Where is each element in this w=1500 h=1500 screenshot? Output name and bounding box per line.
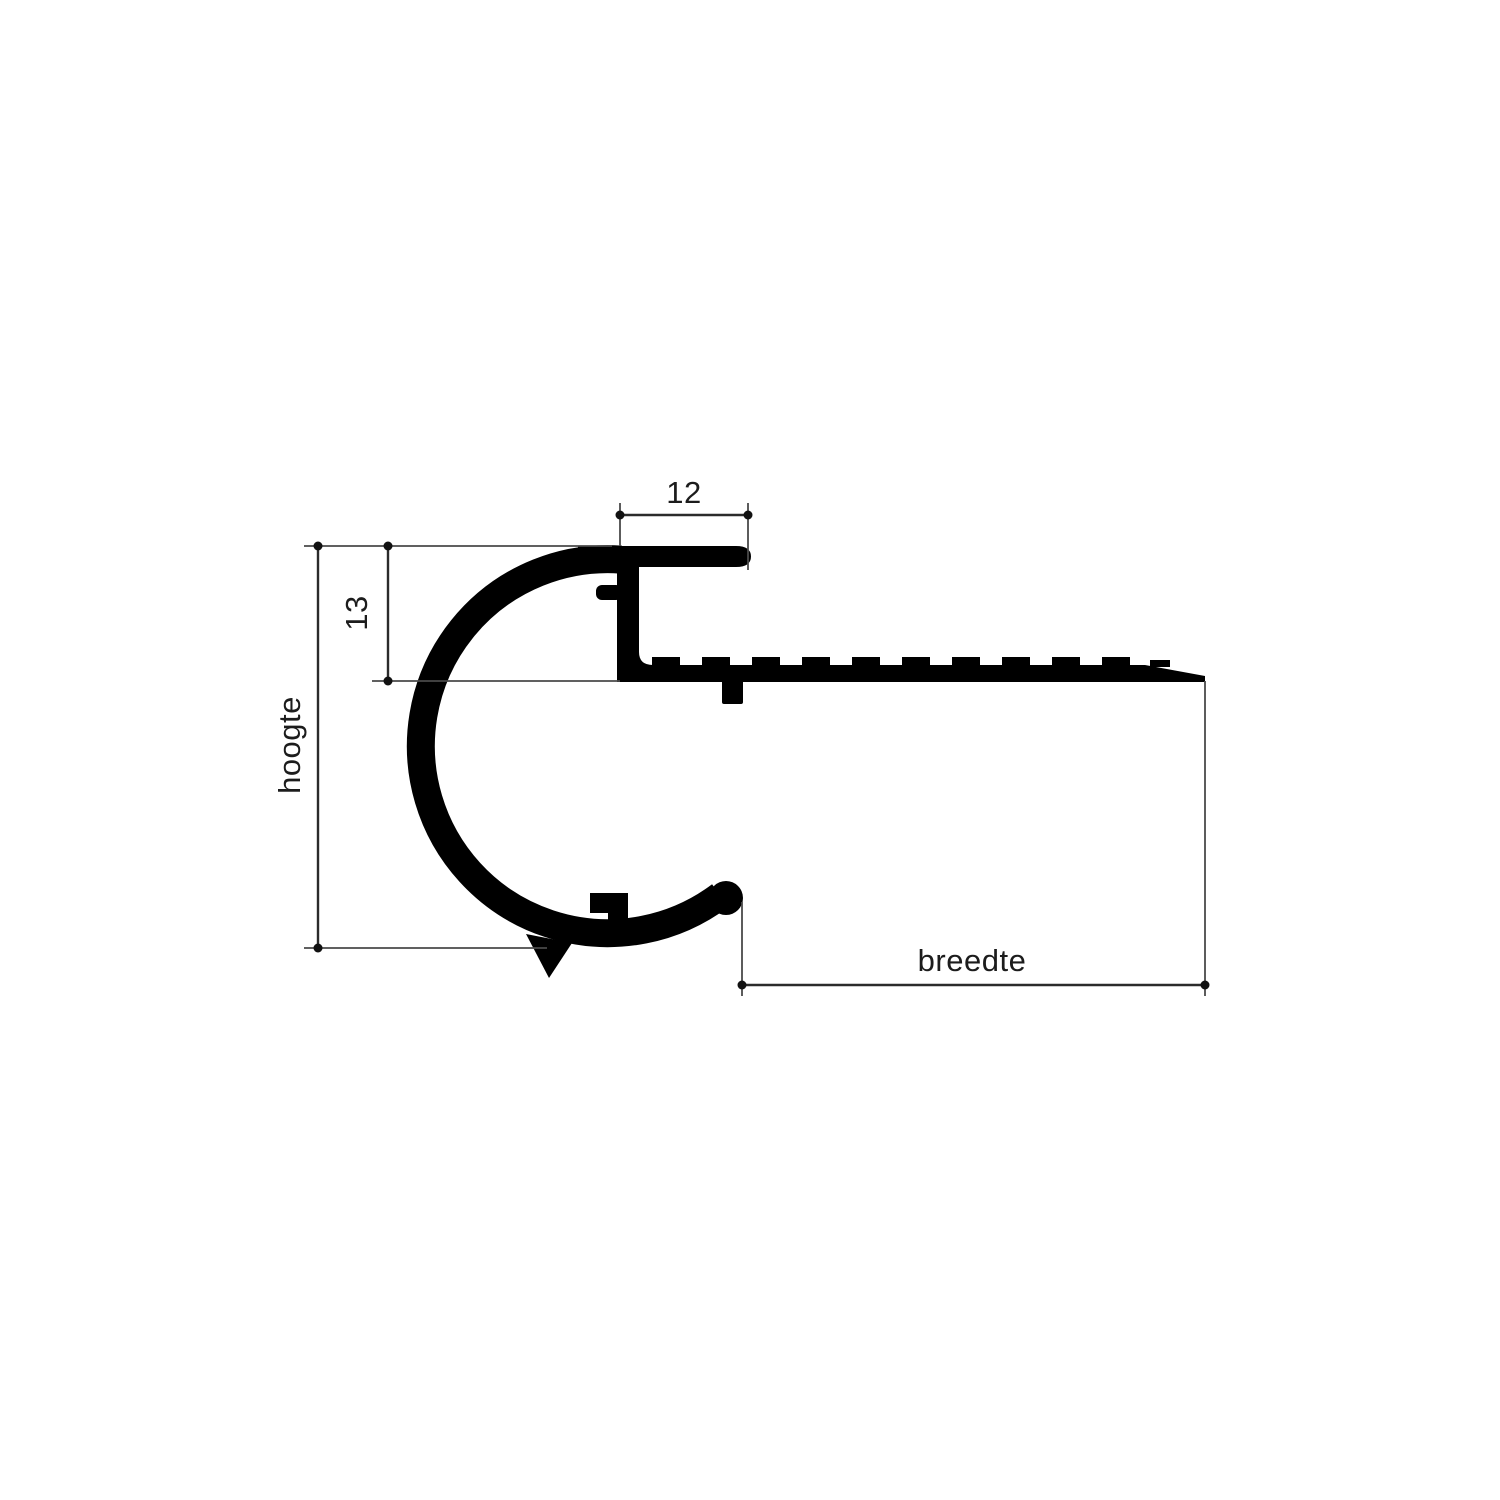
- dimension-tick-13-top: [384, 542, 393, 551]
- dimension-tick-13-bottom: [384, 677, 393, 686]
- profile-shape: [421, 546, 1205, 978]
- dimension-tick-12-right: [744, 511, 753, 520]
- profile-bullnose-arc: [421, 559, 721, 933]
- dimension-label-hoogte: hoogte: [272, 696, 307, 794]
- dimension-label-12: 12: [666, 475, 701, 510]
- profile-bead-knob: [709, 881, 743, 915]
- dimension-label-13: 13: [339, 595, 374, 630]
- profile-diagram: 12 13 hoogte breedte: [0, 0, 1500, 1500]
- dimension-lines: [304, 503, 1210, 996]
- dimension-tick-hoogte-top: [314, 542, 323, 551]
- drawing-canvas: 12 13 hoogte breedte: [0, 0, 1500, 1500]
- dimension-tick-breedte-right: [1201, 981, 1210, 990]
- profile-underside-tab: [722, 678, 743, 704]
- profile-top-flange: [578, 546, 751, 567]
- dimension-tick-breedte-left: [738, 981, 747, 990]
- dimension-label-breedte: breedte: [918, 943, 1027, 978]
- dimension-tick-12-left: [616, 511, 625, 520]
- dimension-tick-hoogte-bottom: [314, 944, 323, 953]
- profile-stem-nub: [596, 585, 622, 600]
